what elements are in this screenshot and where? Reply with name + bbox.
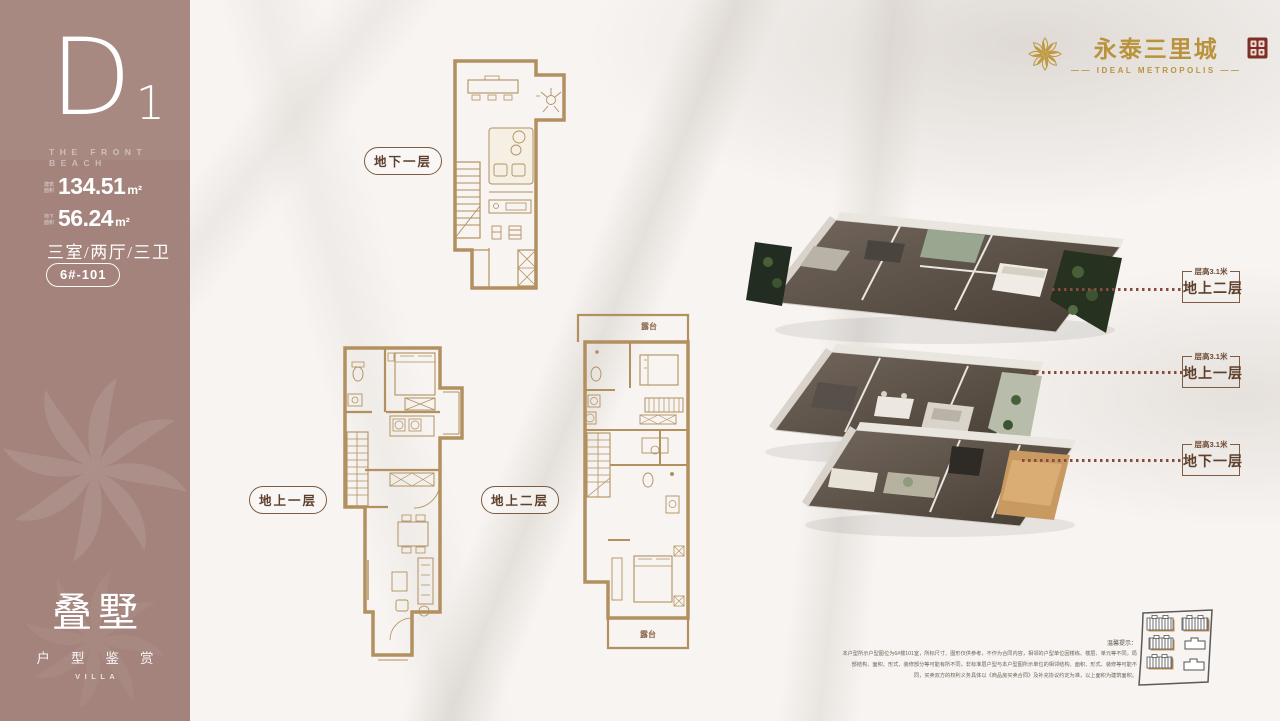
- brand-flower-icon: [1028, 36, 1062, 72]
- balcony-bottom-label: 露台: [640, 629, 656, 639]
- unit-number-badge: 6#-101: [46, 263, 120, 287]
- area-unit: m²: [127, 183, 142, 197]
- leader-line-basement: [1022, 459, 1182, 462]
- disclaimer: 温馨提示： 本户型所示户型图位为6#楼101室，所标尺寸、图形仅供参考，不作为合…: [828, 639, 1137, 681]
- site-building-highlighted: [1182, 616, 1210, 632]
- floor-plan-basement: [445, 55, 580, 295]
- floor-plan-floor1: [335, 340, 475, 670]
- seal-stamp-icon: [1247, 37, 1268, 59]
- site-building-plain: [1185, 638, 1205, 649]
- area-unit: m²: [115, 215, 130, 229]
- room-configuration: 三室/两厅/三卫: [47, 238, 170, 263]
- area-row-building: 建筑面积 134.51 m²: [44, 174, 142, 198]
- balcony-top-label: 露台: [641, 321, 657, 331]
- floor-height-label: 层高3.1米: [1192, 351, 1231, 362]
- floor-tag-floor2: 层高3.1米 地上二层: [1182, 266, 1240, 303]
- disclaimer-line: 部结构、面积、形式、装修部分等可能有所不同，非标准层户型与本户型图所示单位的相邻…: [828, 660, 1137, 671]
- floor-height-label: 层高3.1米: [1192, 439, 1231, 450]
- floor-name: 地下一层: [1183, 451, 1239, 471]
- brand-logo: 永泰三里城 —— IDEAL METROPOLIS ——: [1028, 36, 1268, 75]
- brand-title: 永泰三里城: [1071, 36, 1241, 63]
- area-value: 134.51: [58, 174, 125, 198]
- render-basement: [802, 422, 1076, 537]
- area-value: 56.24: [58, 206, 113, 230]
- site-key-map: [1128, 586, 1273, 701]
- unit-number: 1: [136, 80, 165, 126]
- floor-tag-basement: 层高3.1米 地下一层: [1182, 439, 1240, 476]
- disclaimer-line: 本户型所示户型图位为6#楼101室，所标尺寸、图形仅供参考，不作为合同内容，相邻…: [828, 649, 1137, 660]
- brand-subtitle: —— IDEAL METROPOLIS ——: [1071, 66, 1241, 75]
- disclaimer-title: 温馨提示：: [828, 639, 1137, 649]
- brand-text: 永泰三里城 —— IDEAL METROPOLIS ——: [1071, 36, 1241, 75]
- product-subtitle-en: VILLA: [0, 672, 190, 681]
- product-block: 叠墅 户型鉴赏 VILLA: [0, 590, 190, 681]
- unit-code: D 1: [50, 28, 165, 128]
- floor-height-label: 层高3.1米: [1192, 266, 1231, 277]
- area-label: 地下面积: [44, 214, 56, 226]
- poster: D 1 THE FRONT BEACH 建筑面积 134.51 m² 地下面积 …: [0, 0, 1280, 721]
- area-label: 建筑面积: [44, 182, 56, 194]
- floor-tag-floor1: 层高3.1米 地上一层: [1182, 351, 1240, 388]
- site-building-highlighted: [1147, 655, 1174, 670]
- tagline-line2: BEACH: [49, 158, 147, 169]
- plan-label-basement: 地下一层: [364, 147, 442, 175]
- plan-label-floor2: 地上二层: [481, 486, 559, 514]
- site-building-plain: [1184, 659, 1204, 670]
- plan-label-floor1: 地上一层: [249, 486, 327, 514]
- site-building-highlighted: [1147, 616, 1175, 632]
- floor-name: 地上一层: [1183, 363, 1239, 383]
- tagline: THE FRONT BEACH: [49, 147, 147, 169]
- area-row-basement: 地下面积 56.24 m²: [44, 206, 130, 230]
- isometric-floor-renders: [745, 195, 1130, 540]
- disclaimer-line: 同，买卖双方的权利义务具体以《商品房买卖合同》及补充协议约定为准，以上面积为建筑…: [828, 671, 1137, 682]
- product-title: 叠墅: [0, 590, 190, 636]
- leader-line-floor2: [1052, 288, 1182, 291]
- sidebar: D 1 THE FRONT BEACH 建筑面积 134.51 m² 地下面积 …: [0, 0, 190, 721]
- leader-line-floor1: [1030, 371, 1182, 374]
- site-building-highlighted: [1149, 636, 1175, 651]
- render-floor2: [746, 212, 1124, 344]
- unit-letter: D: [50, 28, 132, 128]
- floor-name: 地上二层: [1183, 278, 1239, 298]
- floor-plan-floor2: 露台 露台: [568, 303, 698, 663]
- tagline-line1: THE FRONT: [49, 147, 147, 158]
- product-subtitle: 户型鉴赏: [0, 647, 190, 667]
